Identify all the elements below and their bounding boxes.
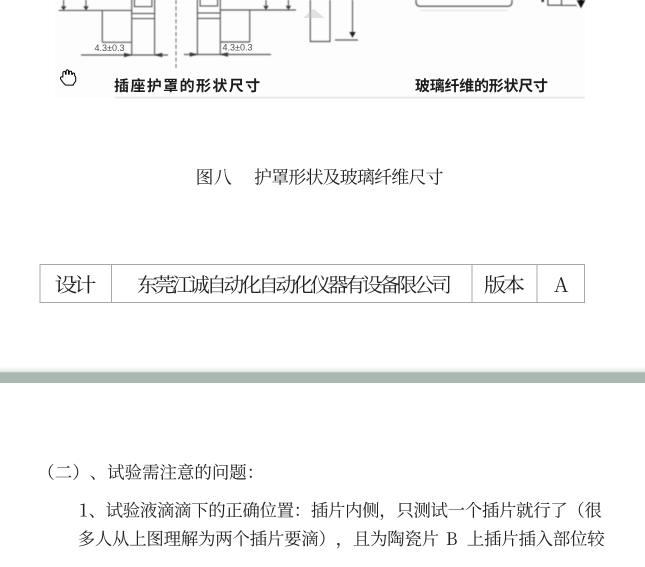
svg-text:4.3±0.3: 4.3±0.3 [95, 43, 125, 53]
svg-text:4.3±0.3: 4.3±0.3 [223, 43, 253, 53]
